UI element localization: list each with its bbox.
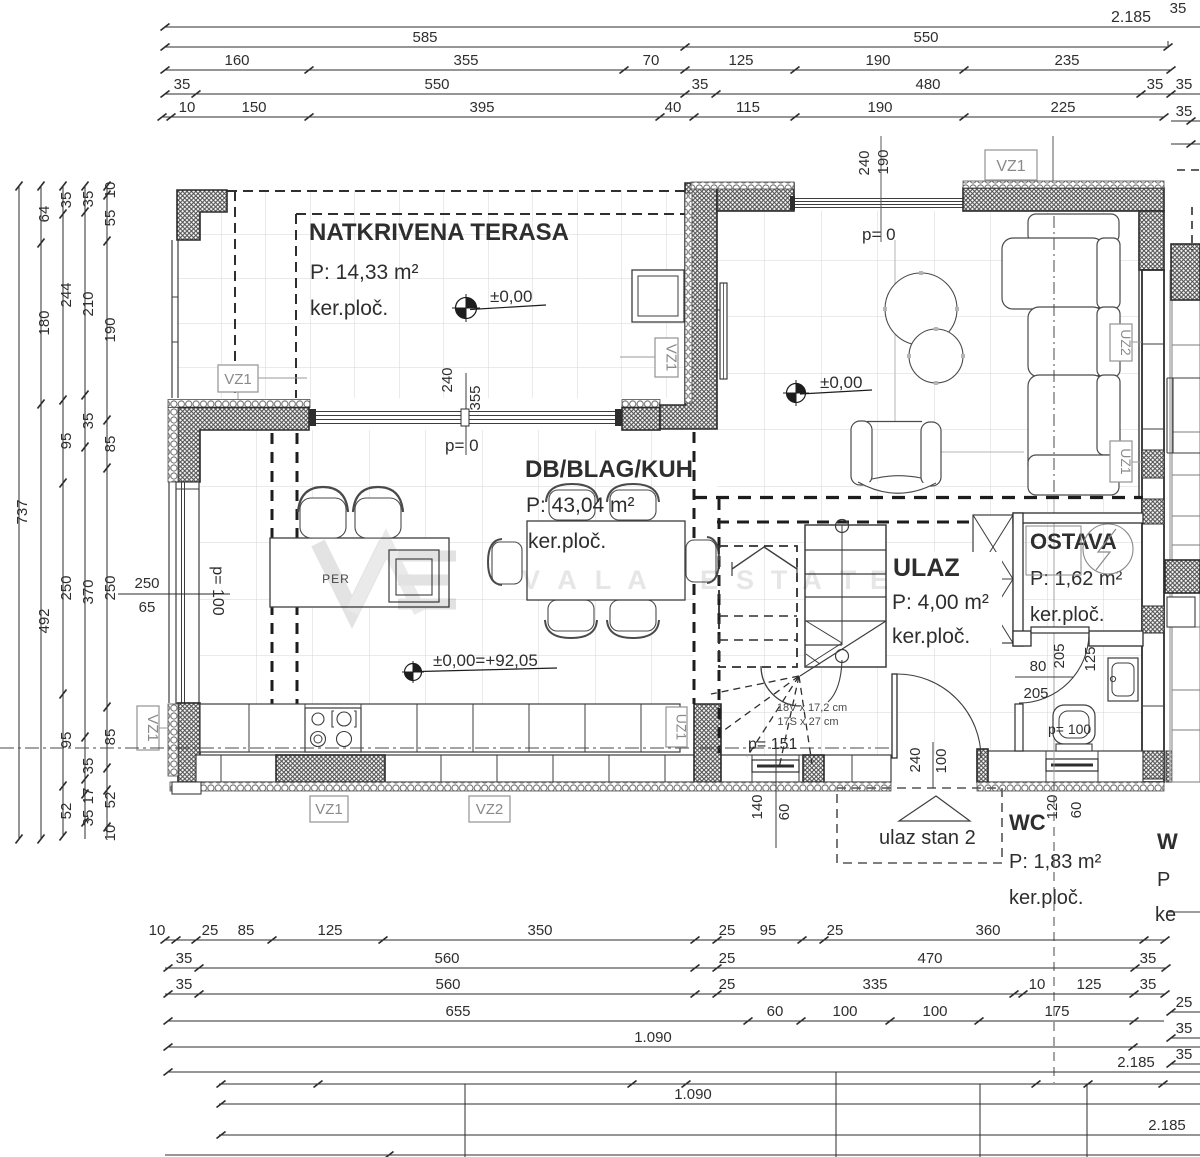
svg-text:40: 40 xyxy=(665,99,682,116)
svg-text:60: 60 xyxy=(776,804,793,821)
svg-text:150: 150 xyxy=(241,99,266,116)
svg-text:85: 85 xyxy=(102,436,119,453)
svg-text:225: 225 xyxy=(1050,99,1075,116)
svg-text:A: A xyxy=(802,565,822,595)
svg-text:W: W xyxy=(1157,829,1178,854)
svg-text:ulaz stan 2: ulaz stan 2 xyxy=(879,827,976,849)
svg-text:240: 240 xyxy=(856,150,873,175)
svg-text:370: 370 xyxy=(80,579,97,604)
svg-text:10: 10 xyxy=(179,99,196,116)
svg-text:35: 35 xyxy=(1176,76,1193,93)
svg-text:35: 35 xyxy=(1140,976,1157,993)
svg-text:L: L xyxy=(595,565,612,595)
svg-text:2.185: 2.185 xyxy=(1148,1117,1186,1134)
svg-text:35: 35 xyxy=(80,758,97,775)
svg-text:35: 35 xyxy=(1176,103,1193,120)
svg-text:±0,00: ±0,00 xyxy=(820,373,862,392)
svg-text:P: 1,83 m²: P: 1,83 m² xyxy=(1009,851,1102,873)
svg-text:35: 35 xyxy=(1176,1046,1193,1063)
svg-text:P: 4,00 m²: P: 4,00 m² xyxy=(892,591,989,614)
svg-text:25: 25 xyxy=(719,922,736,939)
svg-text:205: 205 xyxy=(1023,685,1048,702)
svg-text:360: 360 xyxy=(975,922,1000,939)
svg-text:2.185: 2.185 xyxy=(1111,9,1151,26)
svg-text:ke: ke xyxy=(1155,904,1176,926)
svg-text:85: 85 xyxy=(238,922,255,939)
svg-text:V: V xyxy=(522,565,540,595)
svg-text:350: 350 xyxy=(527,922,552,939)
svg-text:125: 125 xyxy=(1076,976,1101,993)
svg-text:p= 100: p= 100 xyxy=(1048,721,1091,737)
svg-text:125: 125 xyxy=(317,922,342,939)
svg-text:175: 175 xyxy=(1044,1003,1069,1020)
svg-text:ker.ploč.: ker.ploč. xyxy=(1009,887,1083,909)
svg-text:ker.ploč.: ker.ploč. xyxy=(310,297,388,320)
svg-text:35: 35 xyxy=(174,76,191,93)
svg-text:244: 244 xyxy=(58,282,75,307)
svg-text:E: E xyxy=(700,565,718,595)
svg-text:120: 120 xyxy=(1044,794,1061,819)
svg-text:S: S xyxy=(736,565,754,595)
svg-text:395: 395 xyxy=(469,99,494,116)
svg-text:355: 355 xyxy=(467,385,484,410)
svg-text:WC: WC xyxy=(1009,810,1046,835)
svg-text:35: 35 xyxy=(1147,76,1164,93)
svg-text:±0,00: ±0,00 xyxy=(490,287,532,306)
svg-text:60: 60 xyxy=(767,1003,784,1020)
svg-text:95: 95 xyxy=(58,433,75,450)
svg-text:P: 14,33 m²: P: 14,33 m² xyxy=(310,261,419,284)
svg-text:470: 470 xyxy=(917,950,942,967)
svg-text:737: 737 xyxy=(14,499,31,524)
svg-text:70: 70 xyxy=(643,52,660,69)
svg-text:10: 10 xyxy=(102,182,119,199)
svg-text:p= 0: p= 0 xyxy=(862,225,896,244)
svg-text:35: 35 xyxy=(80,810,97,827)
svg-text:VZ2: VZ2 xyxy=(476,801,504,818)
svg-text:35: 35 xyxy=(58,192,75,209)
svg-text:35: 35 xyxy=(1176,1020,1193,1037)
svg-text:25: 25 xyxy=(719,976,736,993)
svg-text:235: 235 xyxy=(1054,52,1079,69)
svg-text:52: 52 xyxy=(58,803,75,820)
svg-text:100: 100 xyxy=(832,1003,857,1020)
svg-text:35: 35 xyxy=(1140,950,1157,967)
svg-text:95: 95 xyxy=(760,922,777,939)
svg-text:VZ1: VZ1 xyxy=(996,158,1025,175)
svg-text:VZ1: VZ1 xyxy=(224,371,252,388)
svg-text:10: 10 xyxy=(149,922,166,939)
svg-text:35: 35 xyxy=(1170,0,1187,17)
svg-text:17: 17 xyxy=(80,788,97,805)
svg-text:25: 25 xyxy=(719,950,736,967)
svg-text:VZ1: VZ1 xyxy=(663,344,680,372)
svg-text:25: 25 xyxy=(1176,994,1193,1011)
svg-text:25: 25 xyxy=(202,922,219,939)
svg-text:E: E xyxy=(870,565,888,595)
svg-text:250: 250 xyxy=(102,575,119,600)
svg-text:125: 125 xyxy=(728,52,753,69)
svg-text:210: 210 xyxy=(80,291,97,316)
svg-text:10: 10 xyxy=(1029,976,1046,993)
svg-text:60: 60 xyxy=(1068,802,1085,819)
svg-text:100: 100 xyxy=(922,1003,947,1020)
svg-text:492: 492 xyxy=(36,608,53,633)
svg-text:35: 35 xyxy=(176,976,193,993)
svg-text:2.185: 2.185 xyxy=(1117,1054,1155,1071)
svg-text:190: 190 xyxy=(875,149,892,174)
svg-text:17S x 27 cm: 17S x 27 cm xyxy=(777,716,838,728)
svg-text:240: 240 xyxy=(907,747,924,772)
svg-text:VZ1: VZ1 xyxy=(315,801,343,818)
svg-text:±0,00=+92,05: ±0,00=+92,05 xyxy=(433,651,538,670)
svg-text:P: 43,04 m²: P: 43,04 m² xyxy=(526,494,635,517)
svg-text:VZ1: VZ1 xyxy=(144,714,161,742)
svg-text:64: 64 xyxy=(36,206,53,223)
svg-text:240: 240 xyxy=(439,367,456,392)
svg-text:ker.ploč.: ker.ploč. xyxy=(892,625,970,648)
svg-text:ULAZ: ULAZ xyxy=(893,554,960,582)
svg-text:190: 190 xyxy=(102,317,119,342)
svg-text:100: 100 xyxy=(933,748,950,773)
svg-text:UZ1: UZ1 xyxy=(674,714,690,741)
svg-text:ker.ploč.: ker.ploč. xyxy=(1030,604,1104,626)
svg-text:180: 180 xyxy=(36,310,53,335)
svg-text:205: 205 xyxy=(1051,643,1068,668)
svg-text:95: 95 xyxy=(58,732,75,749)
svg-text:OSTAVA: OSTAVA xyxy=(1030,529,1117,554)
svg-text:140: 140 xyxy=(749,794,766,819)
svg-text:ker.ploč.: ker.ploč. xyxy=(528,530,606,553)
svg-text:p= 151: p= 151 xyxy=(748,736,797,753)
svg-text:55: 55 xyxy=(102,210,119,227)
svg-text:A: A xyxy=(627,565,647,595)
svg-text:355: 355 xyxy=(453,52,478,69)
svg-text:P: P xyxy=(1157,869,1170,891)
svg-text:35: 35 xyxy=(80,413,97,430)
svg-text:85: 85 xyxy=(102,729,119,746)
svg-text:18V x 17,2 cm: 18V x 17,2 cm xyxy=(777,702,847,714)
svg-text:115: 115 xyxy=(736,99,760,116)
svg-text:T: T xyxy=(771,565,788,595)
svg-text:35: 35 xyxy=(692,76,709,93)
svg-text:655: 655 xyxy=(445,1003,470,1020)
svg-text:p= 0: p= 0 xyxy=(445,436,479,455)
svg-text:125: 125 xyxy=(1082,646,1099,671)
svg-text:250: 250 xyxy=(58,575,75,600)
svg-text:585: 585 xyxy=(412,29,437,46)
svg-text:1.090: 1.090 xyxy=(634,1029,672,1046)
svg-text:A: A xyxy=(557,565,577,595)
svg-text:NATKRIVENA TERASA: NATKRIVENA TERASA xyxy=(309,219,569,246)
svg-text:p= 100: p= 100 xyxy=(209,566,226,615)
svg-text:80: 80 xyxy=(1030,658,1047,675)
svg-text:25: 25 xyxy=(827,922,844,939)
svg-text:T: T xyxy=(840,565,857,595)
svg-text:35: 35 xyxy=(176,950,193,967)
svg-text:250: 250 xyxy=(134,575,159,592)
svg-text:52: 52 xyxy=(102,792,119,809)
svg-text:480: 480 xyxy=(915,76,940,93)
svg-text:P: 1,62 m²: P: 1,62 m² xyxy=(1030,568,1123,590)
svg-text:65: 65 xyxy=(139,599,156,616)
svg-text:560: 560 xyxy=(434,950,459,967)
svg-text:10: 10 xyxy=(102,825,119,842)
svg-text:DB/BLAG/KUH: DB/BLAG/KUH xyxy=(525,456,693,483)
svg-text:160: 160 xyxy=(224,52,249,69)
svg-text:335: 335 xyxy=(862,976,887,993)
svg-text:UZ2: UZ2 xyxy=(1118,329,1134,356)
svg-text:35: 35 xyxy=(80,191,97,208)
svg-text:560: 560 xyxy=(435,976,460,993)
svg-text:550: 550 xyxy=(913,29,938,46)
svg-text:190: 190 xyxy=(865,52,890,69)
svg-text:UZ1: UZ1 xyxy=(1118,448,1134,475)
svg-text:190: 190 xyxy=(867,99,892,116)
svg-text:1.090: 1.090 xyxy=(674,1086,712,1103)
svg-text:550: 550 xyxy=(424,76,449,93)
